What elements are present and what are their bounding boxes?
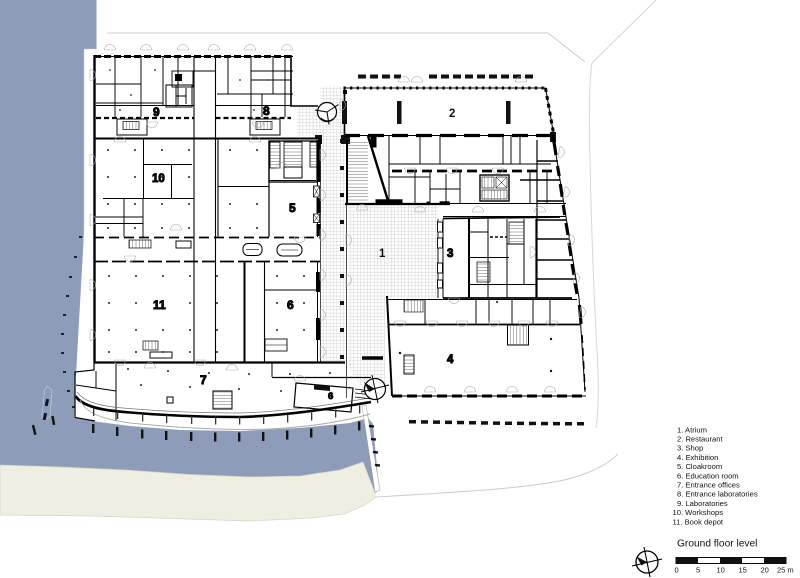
svg-text:3. Shop: 3. Shop [677,444,703,453]
svg-text:11. Book depot: 11. Book depot [673,517,724,526]
svg-text:9: 9 [153,105,160,119]
svg-text:8: 8 [263,104,270,118]
svg-text:15: 15 [739,566,747,575]
svg-text:2. Restaurant: 2. Restaurant [677,435,723,444]
svg-text:6: 6 [287,298,294,312]
svg-text:20: 20 [761,566,769,575]
svg-text:8. Entrance laboratories: 8. Entrance laboratories [677,490,758,499]
svg-text:6. Education room: 6. Education room [677,471,739,480]
svg-text:10: 10 [152,173,165,185]
svg-text:2: 2 [449,108,455,120]
svg-text:3: 3 [447,248,453,260]
svg-text:5. Cloakroom: 5. Cloakroom [677,462,722,471]
svg-text:7: 7 [200,373,207,387]
svg-text:25 m: 25 m [777,566,794,575]
svg-text:10. Workshops: 10. Workshops [673,508,724,517]
svg-text:4. Exhibition: 4. Exhibition [677,453,718,462]
svg-text:Ground floor level: Ground floor level [677,539,757,550]
svg-text:1: 1 [379,248,386,260]
svg-text:4: 4 [447,354,454,366]
svg-text:10: 10 [717,566,725,575]
svg-text:0: 0 [675,566,679,575]
svg-text:1. Atrium: 1. Atrium [677,425,707,434]
svg-text:9. Laboratories: 9. Laboratories [677,499,728,508]
svg-text:5: 5 [289,201,296,215]
svg-text:7. Entrance offices: 7. Entrance offices [677,481,740,490]
svg-text:6: 6 [328,391,333,402]
svg-text:5: 5 [696,566,700,575]
svg-text:11: 11 [153,298,166,312]
